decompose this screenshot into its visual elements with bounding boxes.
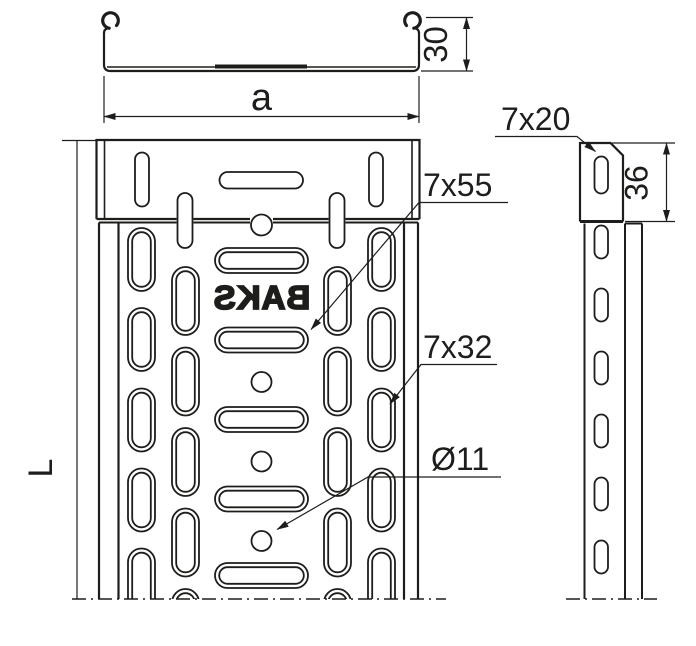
slot [219,411,304,428]
technical-drawing-page: a 30 [0,0,696,646]
left-curl-join [104,28,109,33]
head-slot-horizontal [220,172,304,189]
slot [372,473,391,528]
slot [132,393,151,448]
slot [372,393,391,448]
cable-tray-drawing: a 30 [0,0,696,646]
cross-section-view: a 30 [103,13,473,123]
slot [372,312,391,367]
slot [132,232,151,287]
slot [176,352,195,412]
slot [132,473,151,528]
slot [252,452,272,472]
slot [176,432,195,492]
slot [176,513,195,573]
left-curl-edge [103,13,119,28]
slot [328,513,347,573]
brand-baks: BAKS [213,279,311,316]
slot [219,252,304,269]
svg-text:Ø11: Ø11 [431,441,489,477]
label-7x32: 7x32 [390,329,497,404]
svg-text:7x20: 7x20 [501,101,570,137]
slot [219,567,304,584]
body-left-wall [99,223,119,600]
slot [219,491,304,508]
slot [595,352,609,385]
connector-length-label: 36 [619,165,655,201]
right-curl-edge [405,13,421,28]
junction-slot [330,193,345,248]
slot [328,271,347,331]
dimension-a: a [104,76,419,123]
slot [252,531,272,551]
slot [132,312,151,367]
slot [328,432,347,492]
junction-hole [251,215,272,236]
junction-slot [178,193,193,248]
slot [328,593,347,646]
svg-text:7x55: 7x55 [423,167,492,203]
plan-view: BAKS L 7x55 7x32 Ø11 [22,140,508,646]
svg-text:7x32: 7x32 [423,329,492,365]
slot [219,332,304,349]
slot [176,271,195,331]
slot [595,226,609,259]
head-slot [135,153,149,207]
side-perforations [595,226,609,574]
side-connector-head [580,143,623,222]
brand-text: BAKS [213,279,311,316]
width-dimension-label: a [251,77,273,119]
slot [595,289,609,322]
dimension-L: L [22,141,96,600]
slot [252,372,272,392]
dimension-30: 30 [417,18,473,72]
height-dimension-label: 30 [417,26,454,63]
side-head-slot [595,157,609,194]
side-view: 36 7x20 [495,101,675,599]
body-right-wall [404,223,418,600]
slot [595,478,609,511]
length-dimension-label: L [22,459,60,478]
slot [595,541,609,574]
slot [176,593,195,646]
head-slot [369,153,383,207]
slot [595,415,609,448]
slot [328,352,347,412]
side-wall-lines [585,224,643,600]
slot [372,232,391,287]
